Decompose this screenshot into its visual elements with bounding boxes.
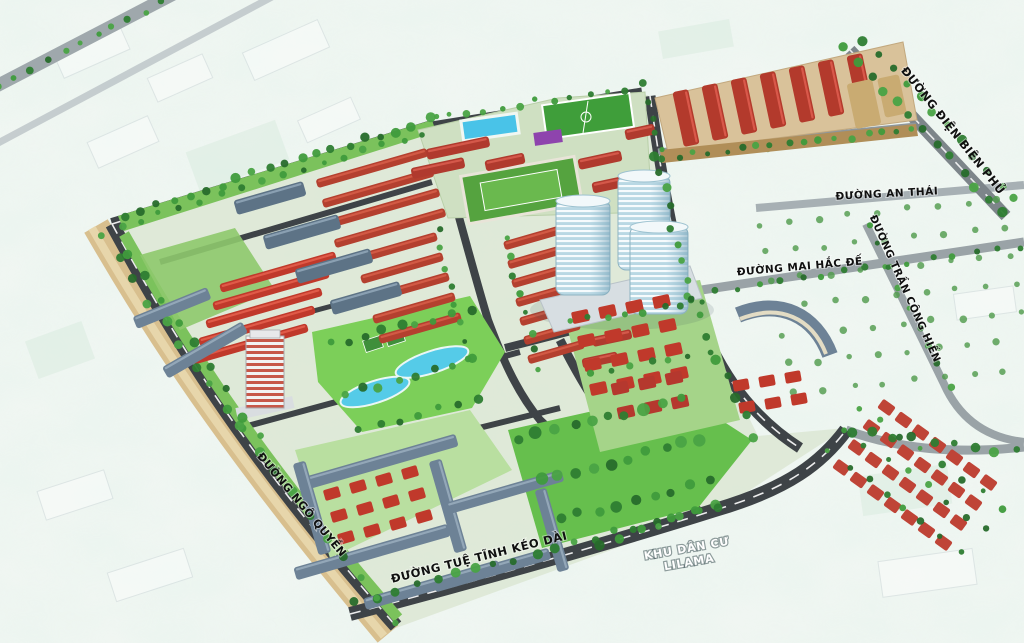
tree — [948, 384, 955, 391]
tree — [457, 319, 464, 326]
tree — [45, 56, 52, 63]
tree — [609, 368, 615, 374]
tree — [192, 363, 201, 372]
tree — [888, 434, 897, 443]
tree — [378, 141, 384, 147]
tree — [341, 155, 348, 162]
tree — [831, 136, 836, 141]
orchard-tree — [846, 354, 851, 359]
tree — [237, 413, 247, 423]
tree — [434, 575, 443, 584]
tree — [649, 151, 659, 161]
tree — [345, 339, 353, 347]
tree — [187, 193, 195, 201]
tree — [207, 363, 215, 371]
orchard-tree — [1008, 253, 1014, 259]
tree — [437, 245, 443, 251]
tree — [449, 363, 456, 370]
tree — [848, 135, 855, 142]
tree — [685, 479, 695, 489]
tree — [152, 200, 159, 207]
tree — [549, 424, 560, 435]
tree — [514, 435, 523, 444]
tree — [884, 491, 891, 498]
tree — [626, 362, 633, 369]
tree — [402, 138, 408, 144]
tree — [677, 394, 685, 402]
tree — [814, 136, 822, 144]
orchard-tree — [828, 272, 835, 279]
orchard-tree — [844, 211, 850, 217]
tree — [706, 476, 715, 485]
orchard-tree — [989, 313, 995, 319]
orchard-tree — [966, 201, 972, 207]
tree — [619, 411, 628, 420]
tree — [997, 207, 1007, 217]
tree — [572, 508, 581, 517]
tree — [776, 277, 783, 284]
tree — [414, 412, 422, 420]
tree — [610, 501, 622, 513]
tree — [989, 447, 999, 457]
tree — [377, 134, 384, 141]
tree — [248, 168, 256, 176]
tree — [465, 356, 472, 363]
orchard-tree — [1019, 309, 1024, 314]
orchard-tree — [814, 359, 822, 367]
orchard-tree — [821, 245, 827, 251]
tree — [951, 440, 958, 447]
tower-left — [556, 195, 610, 295]
tree — [905, 467, 911, 473]
tree — [551, 98, 558, 105]
tree — [1009, 194, 1017, 202]
tree — [937, 534, 942, 539]
tree — [917, 517, 925, 525]
tree — [96, 31, 101, 36]
tree — [637, 403, 650, 416]
tree — [588, 91, 594, 97]
tree — [752, 142, 759, 149]
tree — [961, 169, 969, 177]
tree — [675, 436, 687, 448]
tree — [258, 177, 266, 185]
tree — [801, 274, 807, 280]
tree — [838, 42, 847, 51]
tree — [373, 595, 380, 602]
tree — [377, 420, 385, 428]
tree — [854, 58, 864, 68]
orchard-tree — [875, 351, 882, 358]
tree — [397, 320, 407, 330]
tree — [909, 126, 915, 132]
orchard-tree — [793, 245, 799, 251]
tree — [587, 416, 598, 427]
tree — [623, 456, 632, 465]
orchard-tree — [904, 350, 909, 355]
tree — [645, 99, 651, 105]
orchard-tree — [952, 286, 958, 292]
tree — [98, 232, 105, 239]
orchard-tree — [940, 231, 947, 238]
tree — [974, 249, 980, 255]
tree — [847, 465, 853, 471]
tree — [943, 500, 949, 506]
tree — [219, 190, 226, 197]
tree — [919, 125, 927, 133]
orchard-tree — [757, 223, 763, 229]
tree — [662, 303, 669, 310]
tree — [622, 311, 628, 317]
tree — [945, 151, 953, 159]
masterplan-scene: ĐƯỜNG ĐIỆN BIÊN PHỦ ĐƯỜNG AN THÁI ĐƯỜNG … — [0, 0, 1024, 643]
tree — [342, 391, 349, 398]
tree — [376, 325, 386, 335]
tree — [896, 434, 903, 441]
tree — [712, 287, 719, 294]
tree — [959, 549, 965, 555]
tree — [281, 160, 289, 168]
tree — [219, 183, 227, 191]
tree — [121, 213, 129, 221]
tree — [359, 146, 367, 154]
tree — [26, 67, 34, 75]
tree — [480, 109, 486, 115]
tree — [196, 200, 202, 206]
tree — [449, 283, 455, 289]
tree — [437, 226, 443, 232]
orchard-tree — [911, 232, 917, 238]
tree — [568, 318, 574, 324]
orchard-tree — [853, 383, 858, 388]
tree — [123, 250, 133, 260]
orchard-tree — [924, 289, 931, 296]
tree — [730, 393, 740, 403]
tree — [702, 333, 710, 341]
orchard-tree — [768, 278, 775, 285]
tree — [516, 290, 523, 297]
tree — [663, 183, 672, 192]
tree — [605, 314, 612, 321]
tree — [1014, 446, 1021, 453]
tree — [63, 48, 69, 54]
tree — [818, 274, 824, 280]
tree — [328, 339, 335, 346]
tree — [735, 287, 740, 292]
tree — [230, 173, 240, 183]
tree — [523, 310, 528, 315]
tree — [468, 306, 477, 315]
tree — [396, 377, 403, 384]
tree — [507, 253, 515, 261]
tree — [108, 23, 114, 29]
tree — [406, 122, 416, 132]
orchard-tree — [762, 248, 768, 254]
tree — [206, 380, 213, 387]
tree — [373, 383, 382, 392]
tree — [866, 130, 873, 137]
tree — [659, 147, 664, 152]
orchard-tree — [942, 374, 948, 380]
tree — [963, 514, 970, 521]
tree — [667, 202, 674, 209]
orchard-tree — [870, 325, 876, 331]
tree — [787, 139, 794, 146]
tree — [641, 446, 651, 456]
tree — [532, 96, 537, 101]
tree — [985, 196, 993, 204]
tree — [529, 330, 537, 338]
tree — [610, 527, 617, 534]
tree — [878, 87, 887, 96]
tree — [983, 525, 989, 531]
orchard-tree — [964, 342, 970, 348]
tree — [358, 383, 367, 392]
tree — [391, 128, 401, 138]
tree — [906, 432, 916, 442]
tree — [904, 111, 912, 119]
orchard-tree — [911, 375, 917, 381]
tree — [700, 299, 705, 304]
tree — [463, 110, 471, 118]
tree — [430, 318, 437, 325]
orchard-tree — [992, 338, 999, 345]
tree — [138, 219, 144, 225]
tree — [505, 235, 510, 240]
tree — [630, 526, 637, 533]
tree — [411, 373, 419, 381]
orchard-tree — [801, 300, 807, 306]
tree — [500, 106, 506, 112]
tree — [448, 309, 456, 317]
orchard-tree — [972, 227, 978, 233]
tree — [725, 372, 732, 379]
tree — [533, 549, 543, 559]
orchard-tree — [935, 203, 942, 210]
tree — [280, 171, 287, 178]
tree — [128, 274, 137, 283]
tree — [663, 443, 672, 452]
tree — [571, 538, 578, 545]
tree — [175, 205, 181, 211]
tree — [677, 303, 684, 310]
tree — [685, 354, 690, 359]
tree — [266, 164, 274, 172]
tree — [190, 337, 200, 347]
tree — [490, 561, 496, 567]
tree — [535, 367, 540, 372]
tree — [392, 620, 398, 626]
orchard-tree — [927, 316, 934, 323]
tree — [867, 476, 874, 483]
tree — [360, 133, 369, 142]
tree — [766, 142, 772, 148]
tree — [667, 225, 674, 232]
tree — [742, 411, 750, 419]
tree — [454, 401, 462, 409]
tree — [690, 149, 696, 155]
tree — [705, 151, 710, 156]
tree — [739, 144, 746, 151]
tree — [649, 357, 656, 364]
tree — [442, 266, 448, 272]
tree — [725, 150, 730, 155]
tree — [710, 355, 720, 365]
tree — [347, 143, 354, 150]
tree — [435, 404, 441, 410]
tree — [652, 130, 658, 136]
tree — [536, 472, 548, 484]
tree — [174, 340, 183, 349]
tree — [971, 443, 981, 453]
tree — [396, 419, 403, 426]
tree — [594, 540, 604, 550]
orchard-tree — [917, 262, 924, 269]
tree — [637, 525, 646, 534]
tree — [894, 129, 900, 135]
tree — [136, 207, 145, 216]
tree — [878, 128, 885, 135]
tree — [516, 103, 524, 111]
tree — [312, 149, 320, 157]
orchard-tree — [1014, 281, 1020, 287]
tree — [587, 370, 594, 377]
tree — [655, 169, 662, 176]
orchard-tree — [904, 204, 910, 210]
tree — [639, 309, 647, 317]
tree — [140, 271, 150, 281]
tree — [155, 210, 160, 215]
tree — [606, 459, 618, 471]
tree — [144, 10, 150, 16]
tree — [958, 476, 966, 484]
tree — [447, 112, 452, 117]
tree — [994, 246, 1000, 252]
orchard-tree — [785, 358, 792, 365]
tree — [801, 139, 808, 146]
tree — [697, 312, 704, 319]
tree — [158, 297, 165, 304]
tree — [869, 73, 877, 81]
orchard-tree — [1001, 225, 1008, 232]
tree — [693, 434, 705, 446]
masterplan-render: ĐƯỜNG ĐIỆN BIÊN PHỦ ĐƯỜNG AN THÁI ĐƯỜNG … — [0, 0, 1024, 643]
orchard-tree — [983, 284, 989, 290]
orchard-tree — [999, 369, 1005, 375]
orchard-tree — [976, 255, 982, 261]
tree — [531, 345, 538, 352]
tree — [175, 319, 183, 327]
orchard-tree — [840, 327, 848, 335]
tree — [299, 153, 308, 162]
tree — [552, 470, 563, 481]
tree — [414, 580, 421, 587]
tree — [358, 574, 365, 581]
tree — [875, 51, 882, 58]
tree — [651, 492, 660, 501]
orchard-tree — [852, 239, 857, 244]
tree — [78, 41, 83, 46]
tree — [841, 427, 847, 433]
tree — [572, 420, 581, 429]
tree — [688, 296, 694, 302]
tree — [604, 412, 612, 420]
tree — [708, 350, 714, 356]
tree — [567, 95, 572, 100]
tree — [918, 446, 923, 451]
tree — [322, 160, 327, 165]
tree — [899, 505, 906, 512]
tree — [419, 132, 425, 138]
orchard-tree — [779, 333, 785, 339]
tree — [529, 426, 542, 439]
tree — [11, 75, 17, 81]
tree — [238, 184, 245, 191]
orchard-tree — [893, 292, 900, 299]
tree — [143, 300, 152, 309]
tree — [355, 426, 362, 433]
tree — [301, 167, 307, 173]
tree — [223, 385, 230, 392]
tree — [257, 432, 264, 439]
tree — [570, 468, 581, 479]
tree — [615, 534, 624, 543]
tree — [349, 597, 358, 606]
tree — [714, 503, 723, 512]
tree — [631, 495, 641, 505]
tree — [1018, 246, 1024, 252]
tree — [557, 513, 567, 523]
orchard-tree — [993, 196, 1000, 203]
orchard-tree — [862, 296, 869, 303]
tree — [886, 457, 891, 462]
tree — [326, 145, 334, 153]
orchard-tree — [960, 316, 968, 324]
tree — [584, 314, 590, 320]
tree — [999, 505, 1007, 513]
tree — [589, 463, 599, 473]
tree — [981, 488, 986, 493]
tree — [925, 481, 932, 488]
tree — [931, 438, 940, 447]
tree — [749, 433, 758, 442]
tree — [666, 489, 674, 497]
tree — [411, 321, 418, 328]
tree — [667, 513, 676, 522]
tree — [696, 507, 703, 514]
tree — [510, 558, 517, 565]
tree — [857, 406, 863, 412]
tree — [171, 197, 178, 204]
tree — [675, 512, 684, 521]
tree — [655, 523, 662, 530]
tree — [162, 317, 172, 327]
tree — [938, 461, 946, 469]
tree — [890, 65, 897, 72]
tree — [857, 36, 867, 46]
tree — [675, 241, 682, 248]
tree — [685, 277, 692, 284]
tree — [650, 116, 656, 122]
tree — [202, 187, 210, 195]
tree — [391, 588, 400, 597]
orchard-tree — [786, 218, 792, 224]
tree — [677, 155, 683, 161]
tree — [931, 254, 937, 260]
tree — [969, 183, 979, 193]
tree — [877, 417, 883, 423]
tree — [757, 281, 763, 287]
